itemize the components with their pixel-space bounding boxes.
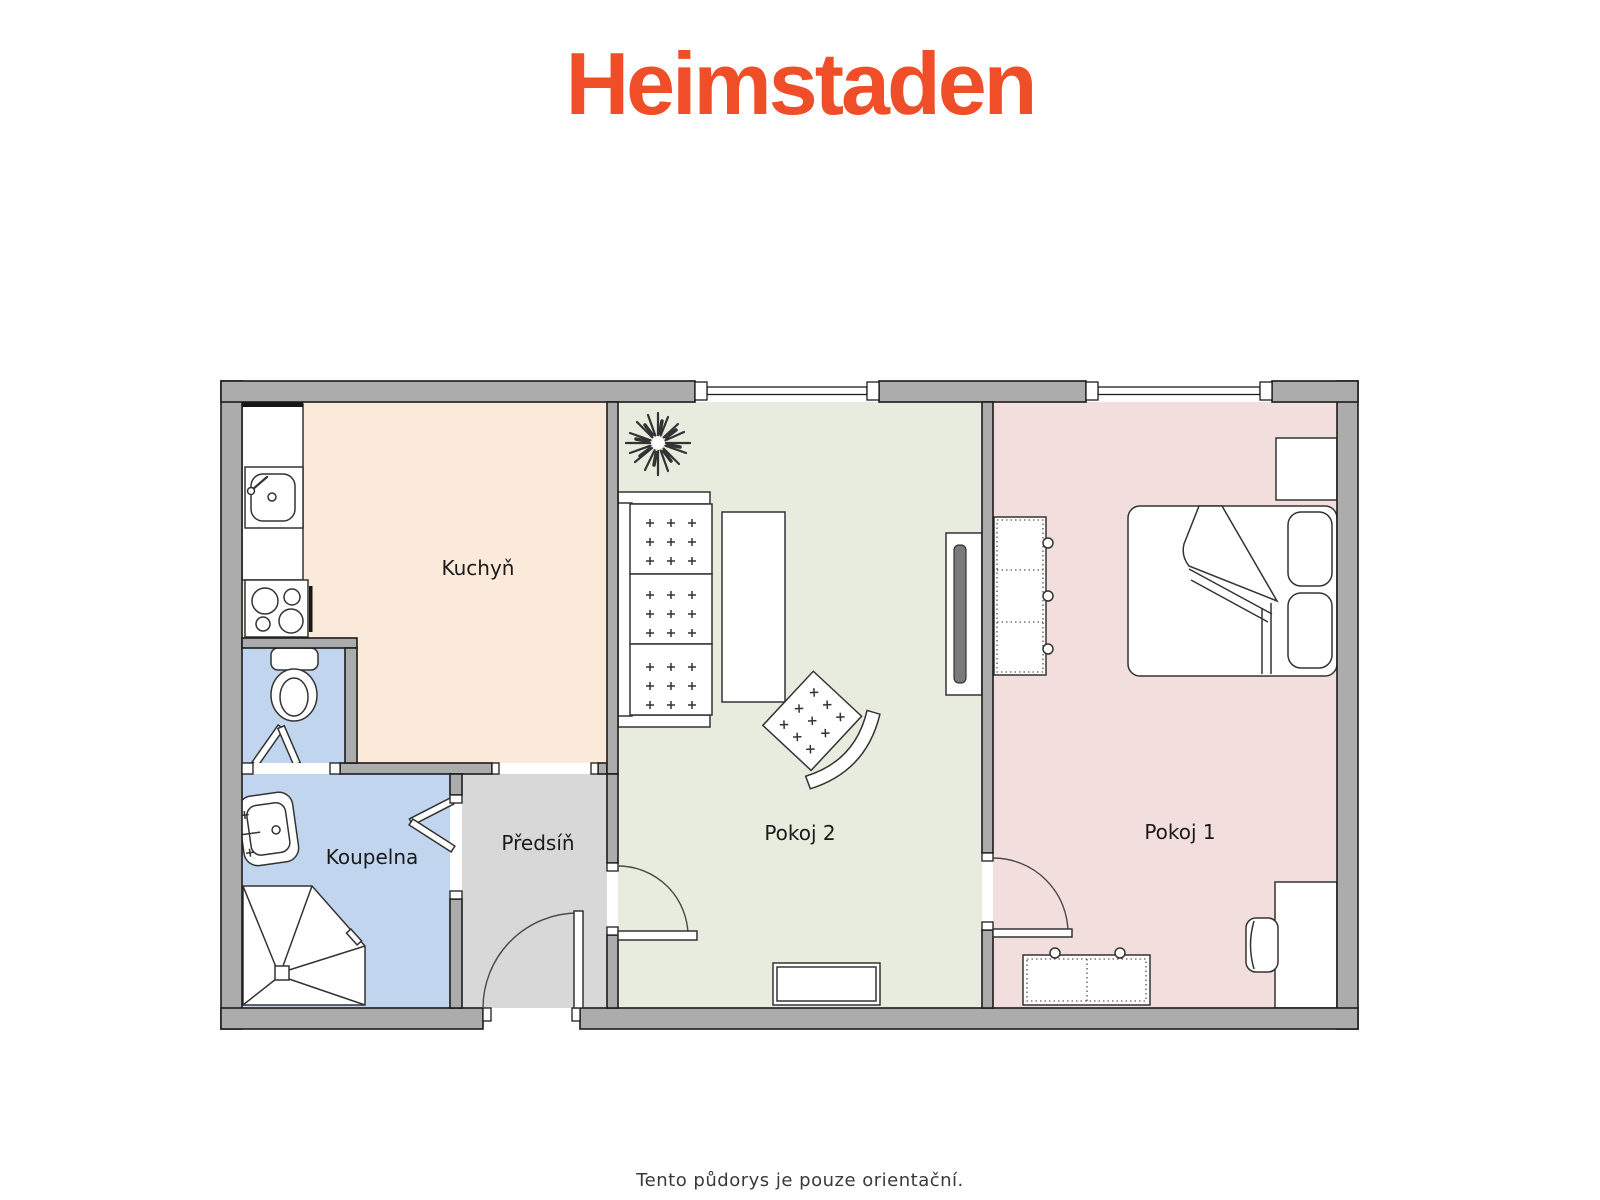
wall-top-b [879, 381, 1086, 402]
sofa-icon [618, 492, 712, 727]
wall-right [1337, 381, 1358, 1029]
wall-top-c [1272, 381, 1358, 402]
bathroom-sink-icon [235, 790, 300, 867]
room-label-pokoj1: Pokoj 1 [1144, 820, 1215, 844]
dresser-icon [1023, 948, 1150, 1005]
wall-bottom-right [580, 1008, 1358, 1029]
kitchen-sink-icon [245, 467, 303, 528]
nightstand-icon [1276, 438, 1337, 500]
disclaimer-note: Tento půdorys je pouze orientační. [0, 1170, 1600, 1191]
floorplan-svg: Kuchyň Koupelna Předsíň Pokoj 2 Pokoj 1 [0, 0, 1600, 1200]
coffee-table-icon [722, 512, 785, 702]
wardrobe-icon [994, 517, 1053, 675]
stove-icon [245, 580, 313, 637]
wall-pokoj2-left-mid [607, 774, 618, 863]
room-label-pokoj2: Pokoj 2 [764, 821, 835, 845]
room-label-kuchyn: Kuchyň [442, 556, 515, 580]
wall-kitchen-corner [598, 763, 607, 774]
room-label-predsin: Předsíň [501, 831, 574, 855]
tv-icon [946, 533, 982, 695]
wall-pokoj2-left-upper [607, 402, 618, 774]
desk-chair-icon [1246, 918, 1278, 972]
window-icon-2 [1086, 382, 1272, 400]
window-icon-1 [695, 382, 879, 400]
wall-top-a [221, 381, 695, 402]
toilet-icon [271, 648, 318, 721]
wall-bath-hall-lower [450, 899, 462, 1008]
room-label-koupelna: Koupelna [326, 845, 419, 869]
wall-left [221, 381, 242, 1029]
hallway-floor [462, 774, 607, 1008]
sideboard-icon [773, 963, 880, 1005]
double-bed-icon [1128, 506, 1337, 676]
wall-wc-top [242, 638, 357, 648]
wall-pokoj2-left-lower [607, 935, 618, 1008]
wall-bath-top [340, 763, 492, 774]
wall-bath-hall-upper [450, 774, 462, 795]
wall-wc-right [345, 648, 357, 763]
desk-icon [1275, 882, 1337, 1008]
wall-pokoj1-left-upper [982, 402, 993, 853]
wall-pokoj1-left-lower [982, 930, 993, 1008]
wall-bottom-left [221, 1008, 483, 1029]
